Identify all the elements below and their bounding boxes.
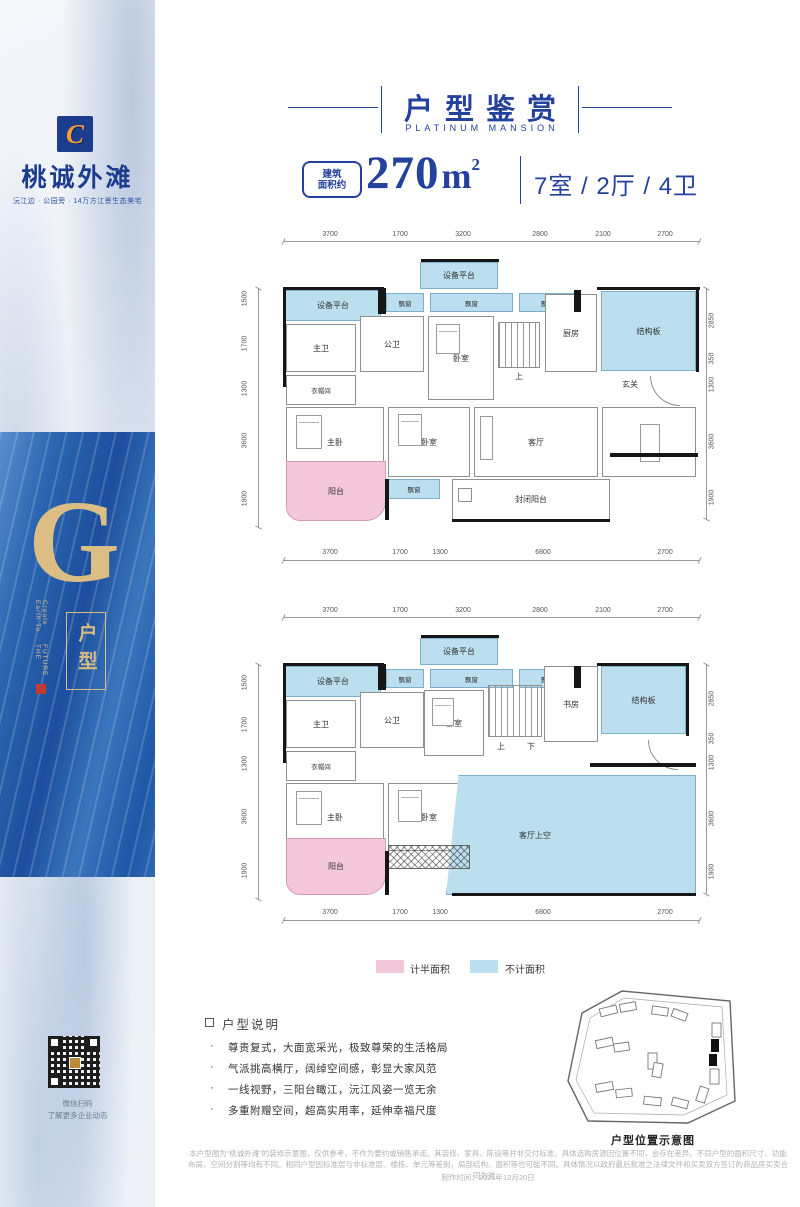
room-equipment-platform: 设备平台 xyxy=(420,262,498,289)
wall-segment xyxy=(696,289,699,372)
dim-label: 1700 xyxy=(380,231,420,238)
bed-icon xyxy=(436,324,460,354)
vertical-english-slogan: Earth To Create THE FUTURE xyxy=(34,600,48,678)
qr-finder-icon xyxy=(48,1036,61,1049)
unit-letter-g: G xyxy=(18,478,130,606)
wall-segment xyxy=(385,479,389,520)
area-badge: 建筑 面积约 xyxy=(302,161,362,198)
wall-segment xyxy=(590,763,696,767)
unit-type-box: 户型 xyxy=(66,612,106,690)
dim-label: 3200 xyxy=(443,607,483,614)
staircase xyxy=(498,322,540,368)
logo-letter: C xyxy=(66,119,84,150)
room-public-bathroom: 公卫 xyxy=(360,692,424,748)
wall-segment xyxy=(597,287,700,290)
room-structural-slab: 结构板 xyxy=(601,291,696,371)
bed-icon xyxy=(398,414,422,446)
dim-label: 1300 xyxy=(709,746,716,780)
wall-segment xyxy=(452,893,696,896)
legend-swatch-excluded-area xyxy=(470,960,498,973)
wall-segment xyxy=(283,663,384,666)
dim-label: 1700 xyxy=(380,607,420,614)
brand-name: 桃诚外滩 xyxy=(8,158,147,194)
dim-label: 2700 xyxy=(645,231,685,238)
room-kitchen: 厨房 xyxy=(545,294,597,372)
header-rule-right xyxy=(582,107,672,108)
dimension-line xyxy=(706,664,707,895)
dim-label: 2700 xyxy=(645,607,685,614)
room-equipment-platform: 设备平台 xyxy=(420,638,498,665)
room-cloakroom: 衣帽间 xyxy=(286,375,356,405)
wall-segment xyxy=(686,666,689,736)
brand-tagline: 沅江边 · 公园旁 · 14万方江景生态美宅 xyxy=(4,196,151,206)
badge-line-2: 面积约 xyxy=(318,180,347,191)
room-cloakroom: 衣帽间 xyxy=(286,751,356,781)
wall-segment xyxy=(610,453,698,457)
spec-divider xyxy=(520,156,521,204)
dim-label: 1900 xyxy=(242,854,249,888)
dim-label: 3600 xyxy=(242,424,249,458)
dim-label: 1300 xyxy=(709,368,716,402)
room-balcony: 阳台 xyxy=(286,838,386,895)
area-unit-sup: 2 xyxy=(472,155,481,175)
dim-label: 2800 xyxy=(520,231,560,238)
bed-icon xyxy=(398,790,422,822)
dim-label: 1300 xyxy=(420,549,460,556)
dim-label: 3200 xyxy=(443,231,483,238)
dim-label: 1500 xyxy=(242,282,249,316)
dim-label: 1300 xyxy=(242,747,249,781)
wall-segment xyxy=(452,519,610,522)
dimension-line xyxy=(283,560,700,561)
notes-square-icon xyxy=(205,1018,214,1027)
dimension-line xyxy=(283,241,700,242)
dim-label: 1700 xyxy=(242,708,249,742)
dim-label: 1900 xyxy=(242,482,249,516)
room-master-bathroom: 主卫 xyxy=(286,324,356,372)
dim-label: 1700 xyxy=(380,909,420,916)
room-bay-window: 飘窗 xyxy=(386,669,424,688)
dim-label: 3700 xyxy=(310,607,350,614)
qr-caption-2: 了解更多企业动态 xyxy=(15,1110,140,1121)
qr-caption-1: 微信扫码 xyxy=(15,1098,140,1109)
legend-label-excluded-area: 不计面积 xyxy=(505,961,545,976)
dim-label: 2100 xyxy=(583,231,623,238)
dim-label: 2850 xyxy=(709,304,716,338)
room-public-bathroom: 公卫 xyxy=(360,316,424,372)
dim-label: 1900 xyxy=(709,855,716,889)
dim-label: 3700 xyxy=(310,231,350,238)
site-map-caption: 户型位置示意图 xyxy=(568,1132,738,1148)
area-figure: 270 m 2 xyxy=(366,146,480,200)
room-master-bathroom: 主卫 xyxy=(286,700,356,748)
room-living-void: 客厅上空 xyxy=(446,775,696,895)
sidebar: C 桃诚外滩 沅江边 · 公园旁 · 14万方江景生态美宅 G Earth To… xyxy=(0,0,155,1207)
note-line: 多重附赠空间，超高实用率，延伸幸福尺度 xyxy=(228,1103,528,1118)
dim-label: 1300 xyxy=(242,372,249,406)
wall-segment xyxy=(421,259,499,262)
dim-label: 2700 xyxy=(645,909,685,916)
room-enclosed-balcony: 封闭阳台 xyxy=(452,479,610,520)
dim-label: 1500 xyxy=(242,666,249,700)
header-bar-left xyxy=(381,86,382,133)
wall-segment xyxy=(283,663,286,763)
wall-segment xyxy=(385,851,389,895)
dimension-line xyxy=(706,288,707,520)
room-bay-window: 飘窗 xyxy=(430,293,513,312)
page-subtitle: PLATINUM MANSION xyxy=(384,123,576,133)
production-date: 制作时间：2021年12月20日 xyxy=(186,1172,790,1183)
stairs-up-label: 上 xyxy=(505,371,533,382)
dim-label: 1300 xyxy=(420,909,460,916)
dim-label: 3600 xyxy=(709,425,716,459)
note-line: 一线视野，三阳台瞰江，沅江风姿一览无余 xyxy=(228,1082,528,1097)
wall-segment xyxy=(283,287,286,387)
dim-label: 2800 xyxy=(520,607,560,614)
brand-logo-icon: C xyxy=(57,116,93,152)
hatched-strip xyxy=(388,845,470,869)
room-layout-text: 7室 / 2厅 / 4卫 xyxy=(534,166,734,201)
dim-label: 1700 xyxy=(242,327,249,361)
stairs-up-label: 上 xyxy=(490,741,512,752)
stairs-down-label: 下 xyxy=(520,741,542,752)
header-rule-left xyxy=(288,107,378,108)
badge-line-1: 建筑 xyxy=(322,169,341,180)
dim-label: 3700 xyxy=(310,909,350,916)
wall-segment xyxy=(574,666,581,688)
note-line: 尊贵复式，大面宽采光，极致尊荣的生活格局 xyxy=(228,1040,528,1055)
wechat-qr-code xyxy=(48,1036,100,1088)
area-unit: m xyxy=(442,155,472,197)
site-location-map xyxy=(560,983,745,1133)
room-balcony: 阳台 xyxy=(286,461,386,521)
legend-swatch-half-area xyxy=(376,960,404,973)
wall-segment xyxy=(283,287,384,290)
page-title: 户型鉴赏 xyxy=(384,86,576,128)
bed-icon xyxy=(296,791,322,825)
legend-label-half-area: 计半面积 xyxy=(410,961,450,976)
wall-segment xyxy=(378,288,386,314)
room-bay-window: 飘窗 xyxy=(386,293,424,312)
dim-label: 6800 xyxy=(523,549,563,556)
bed-icon xyxy=(296,415,322,449)
dim-label: 1700 xyxy=(380,549,420,556)
dimension-line xyxy=(283,617,700,618)
dim-label: 1900 xyxy=(709,481,716,515)
qr-finder-icon xyxy=(87,1036,100,1049)
dim-label: 2850 xyxy=(709,682,716,716)
dim-label: 2100 xyxy=(583,607,623,614)
wall-segment xyxy=(597,663,689,666)
red-seal-icon xyxy=(36,684,46,694)
wall-segment xyxy=(421,635,499,638)
unit-type-label: 户型 xyxy=(73,623,100,679)
sofa-icon xyxy=(480,416,493,460)
dimension-line xyxy=(258,664,259,900)
dim-label: 3700 xyxy=(310,549,350,556)
slogan-line-1: Earth To Create xyxy=(34,600,48,641)
qr-finder-icon xyxy=(48,1075,61,1088)
dimension-line xyxy=(258,288,259,528)
wall-segment xyxy=(378,664,386,690)
slogan-line-2: THE FUTURE xyxy=(34,644,48,678)
dim-label: 2700 xyxy=(645,549,685,556)
bullet-icon: · xyxy=(210,1061,218,1073)
wall-segment xyxy=(574,290,581,312)
room-bay-window: 飘窗 xyxy=(388,479,440,499)
header-bar-right xyxy=(578,86,579,133)
column-box xyxy=(458,488,472,502)
poster-page: C 桃诚外滩 沅江边 · 公园旁 · 14万方江景生态美宅 G Earth To… xyxy=(0,0,800,1207)
notes-heading: 户型说明 xyxy=(222,1014,280,1033)
area-number: 270 xyxy=(366,146,440,200)
note-line: 气派挑高横厅，阔绰空间感，彰显大家风范 xyxy=(228,1061,528,1076)
bullet-icon: · xyxy=(210,1040,218,1052)
bed-icon xyxy=(432,698,454,726)
bullet-icon: · xyxy=(210,1103,218,1115)
dimension-line xyxy=(283,920,700,921)
dim-label: 3600 xyxy=(709,802,716,836)
qr-center-logo-icon xyxy=(69,1057,81,1069)
room-structural-slab: 结构板 xyxy=(601,666,686,734)
dim-label: 6800 xyxy=(523,909,563,916)
entry-door-arc xyxy=(650,376,680,406)
staircase xyxy=(488,685,542,737)
bullet-icon: · xyxy=(210,1082,218,1094)
room-study: 书房 xyxy=(544,666,598,742)
dim-label: 3600 xyxy=(242,800,249,834)
